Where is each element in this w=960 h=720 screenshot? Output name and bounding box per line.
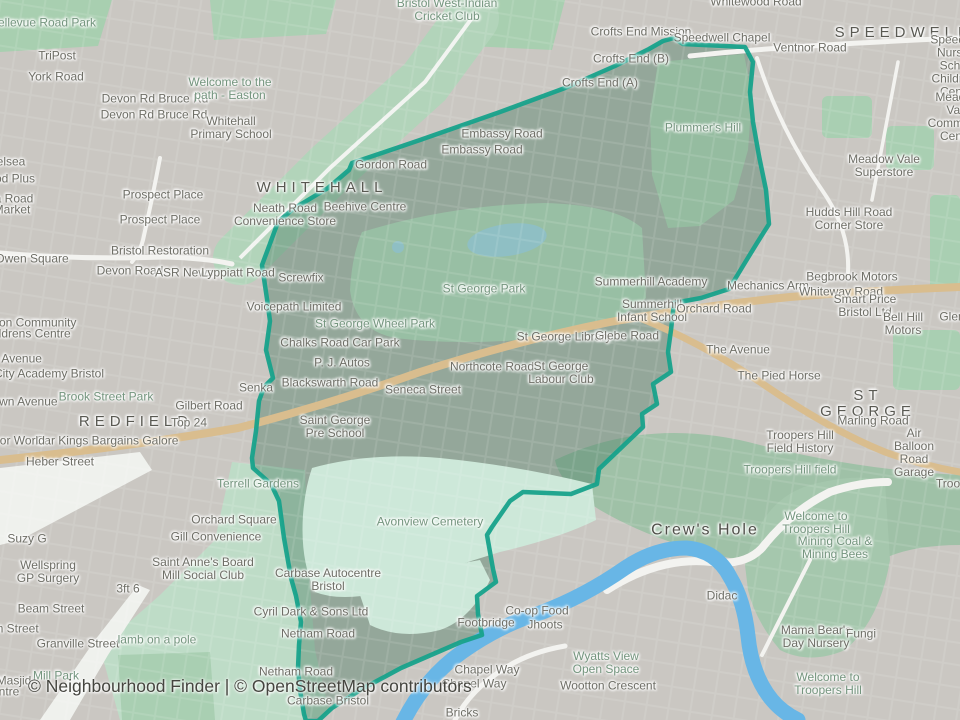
map-label: Meadow Vale Community Centre bbox=[928, 91, 960, 143]
district-label: Crew's Hole bbox=[651, 521, 759, 538]
map-label: Bristol West-Indian Cricket Club bbox=[397, 0, 497, 23]
map-label: Wootton Crescent bbox=[560, 680, 656, 693]
map-label: Car Kings Bargains Galore bbox=[36, 435, 179, 448]
map-label: Glebe Road bbox=[595, 330, 659, 343]
map-label: Bristol Restoration bbox=[111, 245, 209, 258]
map-label: elsea bbox=[0, 156, 25, 169]
map-label: Chalks Road Car Park bbox=[280, 337, 399, 350]
map-label: Bellevue Road Park bbox=[0, 17, 96, 30]
map-label: Lyppiatt Road bbox=[201, 267, 275, 280]
map-label: Welcome to Troopers Hill bbox=[782, 510, 850, 536]
map-label: Jhoots bbox=[527, 619, 562, 632]
map-label: Northcote Road bbox=[450, 361, 534, 374]
map-label: own Avenue bbox=[0, 396, 58, 409]
map-label: Summerhill Academy bbox=[595, 276, 708, 289]
map-label: Mama Bear's Day Nursery bbox=[781, 624, 851, 650]
map-label: Top 24 bbox=[171, 417, 207, 430]
map-label: P. J. Autos bbox=[314, 357, 370, 370]
map-label: Embassy Road bbox=[461, 128, 542, 141]
map-label: u Avenue bbox=[0, 353, 42, 366]
map-label: Granville Street bbox=[37, 638, 120, 651]
map-label: Bell Hill Motors bbox=[875, 311, 932, 337]
map-label: Owen Square bbox=[0, 253, 69, 266]
map-label: hildrens Centre bbox=[0, 328, 71, 341]
map-label: lamb on a pole bbox=[118, 634, 197, 647]
map-label: Hudds Hill Road Corner Store bbox=[806, 206, 893, 232]
map-label: Glen bbox=[939, 311, 960, 324]
map-label: Whitehall Primary School bbox=[190, 115, 271, 141]
map-label: Troo bbox=[936, 478, 960, 491]
map-label: od Plus bbox=[0, 173, 35, 186]
map-label: Troopers Hill Field History bbox=[766, 429, 834, 455]
map-label: Welcome to Troopers Hill bbox=[794, 671, 862, 697]
map-label: Co-op Food bbox=[505, 605, 568, 618]
map-label: Suzy G bbox=[7, 533, 46, 546]
map-label: Gordon Road bbox=[355, 159, 427, 172]
map-label: Crofts End (A) bbox=[562, 77, 638, 90]
map-label: Embassy Road bbox=[441, 144, 522, 157]
map-label: Ventnor Road bbox=[773, 42, 846, 55]
map-label: Heber Street bbox=[26, 456, 94, 469]
map-label: Blackswarth Road bbox=[282, 377, 379, 390]
map-label: Whitewood Road bbox=[710, 0, 801, 8]
map-label: Cyril Dark & Sons Ltd bbox=[254, 606, 369, 619]
map-label: Senka bbox=[239, 382, 273, 395]
map-label: Crofts End (B) bbox=[593, 53, 669, 66]
map-label: Begbrook Motors bbox=[806, 271, 897, 284]
map-label: TriPost bbox=[38, 50, 76, 63]
map-label: Gill Convenience bbox=[171, 531, 262, 544]
map-label: Wellspring GP Surgery bbox=[17, 559, 79, 585]
map-label: Beam Street bbox=[18, 603, 85, 616]
map-label: Chapel Way bbox=[455, 664, 520, 677]
map-label: Marling Road bbox=[837, 415, 908, 428]
map-label: Seneca Street bbox=[385, 384, 461, 397]
map-label: St George Wheel Park bbox=[315, 318, 435, 331]
map-label: Voicepath Limited bbox=[247, 301, 342, 314]
map-label: Brook Street Park bbox=[59, 391, 154, 404]
map-label: Screwfix bbox=[278, 272, 323, 285]
map-label: Devon Road bbox=[97, 265, 164, 278]
district-label: WHITEHALL bbox=[257, 180, 388, 196]
map-label: St George Labour Club bbox=[528, 360, 593, 386]
map-label: Orchard Square bbox=[191, 514, 276, 527]
map-label: Meadow Vale Superstore bbox=[848, 153, 920, 179]
labels-layer: Bellevue Road ParkTriPostYork RoadDevon … bbox=[0, 0, 960, 720]
map-label: St George Park bbox=[443, 283, 526, 296]
map-label: Saint Anne's Board Mill Social Club bbox=[152, 556, 254, 582]
map-label: Plummer's Hill bbox=[665, 122, 741, 135]
map-label: Welcome to the path - Easton bbox=[188, 76, 271, 102]
map-label: Mining Coal & Mining Bees bbox=[798, 535, 873, 561]
map-label: Fungi bbox=[846, 628, 876, 641]
map-canvas[interactable]: Bellevue Road ParkTriPostYork RoadDevon … bbox=[0, 0, 960, 720]
map-label: Orchard Road bbox=[676, 303, 751, 316]
map-label: Terrell Gardens bbox=[217, 478, 299, 491]
map-label: The Pied Horse bbox=[737, 370, 820, 383]
attribution: © Neighbourhood Finder | © OpenStreetMap… bbox=[28, 676, 472, 697]
map-label: Speedwell Chapel bbox=[674, 32, 771, 45]
map-label: Prospect Place bbox=[120, 214, 201, 227]
map-label: Prospect Place bbox=[123, 189, 204, 202]
map-label: Didac bbox=[707, 590, 738, 603]
map-label: Market bbox=[0, 204, 30, 217]
map-label: City Academy Bristol bbox=[0, 368, 104, 381]
map-label: ntre bbox=[0, 686, 19, 699]
map-label: Bricks bbox=[446, 707, 479, 720]
map-label: Beehive Centre bbox=[324, 201, 407, 214]
map-label: Troopers Hill field bbox=[744, 464, 837, 477]
map-label: York Road bbox=[28, 71, 84, 84]
map-label: Speedwell Nursery School Children's Cent… bbox=[930, 34, 960, 99]
map-label: Gilbert Road bbox=[175, 400, 242, 413]
map-label: Neath Road Convenience Store bbox=[234, 202, 336, 228]
map-label: 3ft 6 bbox=[116, 583, 139, 596]
map-label: Wyatts View Open Space bbox=[573, 650, 640, 676]
map-label: Avonview Cemetery bbox=[377, 516, 484, 529]
map-label: Netham Road bbox=[281, 628, 355, 641]
map-label: Carbase Autocentre Bristol bbox=[275, 567, 381, 593]
map-label: m Street bbox=[0, 623, 39, 636]
map-label: Footbridge bbox=[457, 617, 514, 630]
map-label: Air Balloon Road Garage bbox=[891, 427, 937, 479]
map-label: oor World bbox=[0, 435, 45, 448]
map-label: Mechanics Arm bbox=[727, 280, 809, 293]
map-label: The Avenue bbox=[706, 344, 770, 357]
map-label: Saint George Pre School bbox=[300, 414, 371, 440]
